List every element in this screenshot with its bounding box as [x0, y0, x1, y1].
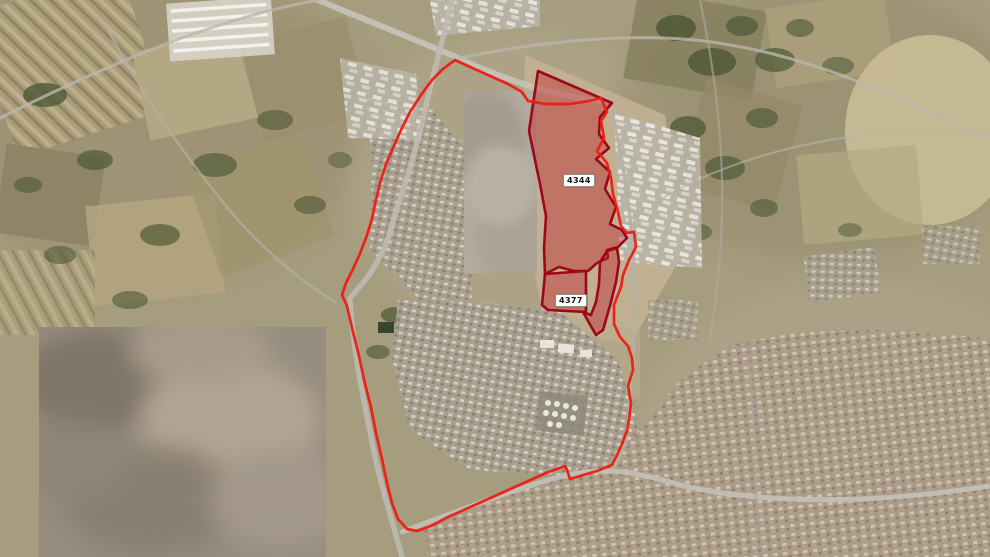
satellite-map	[0, 0, 990, 557]
map-viewport[interactable]: 4344 4377	[0, 0, 990, 557]
greenhouse-grid	[166, 0, 275, 62]
parcel-label-4377: 4377	[555, 294, 587, 307]
blur-patch-bottom-left	[10, 315, 350, 557]
parcel-label-4344: 4344	[563, 174, 595, 187]
